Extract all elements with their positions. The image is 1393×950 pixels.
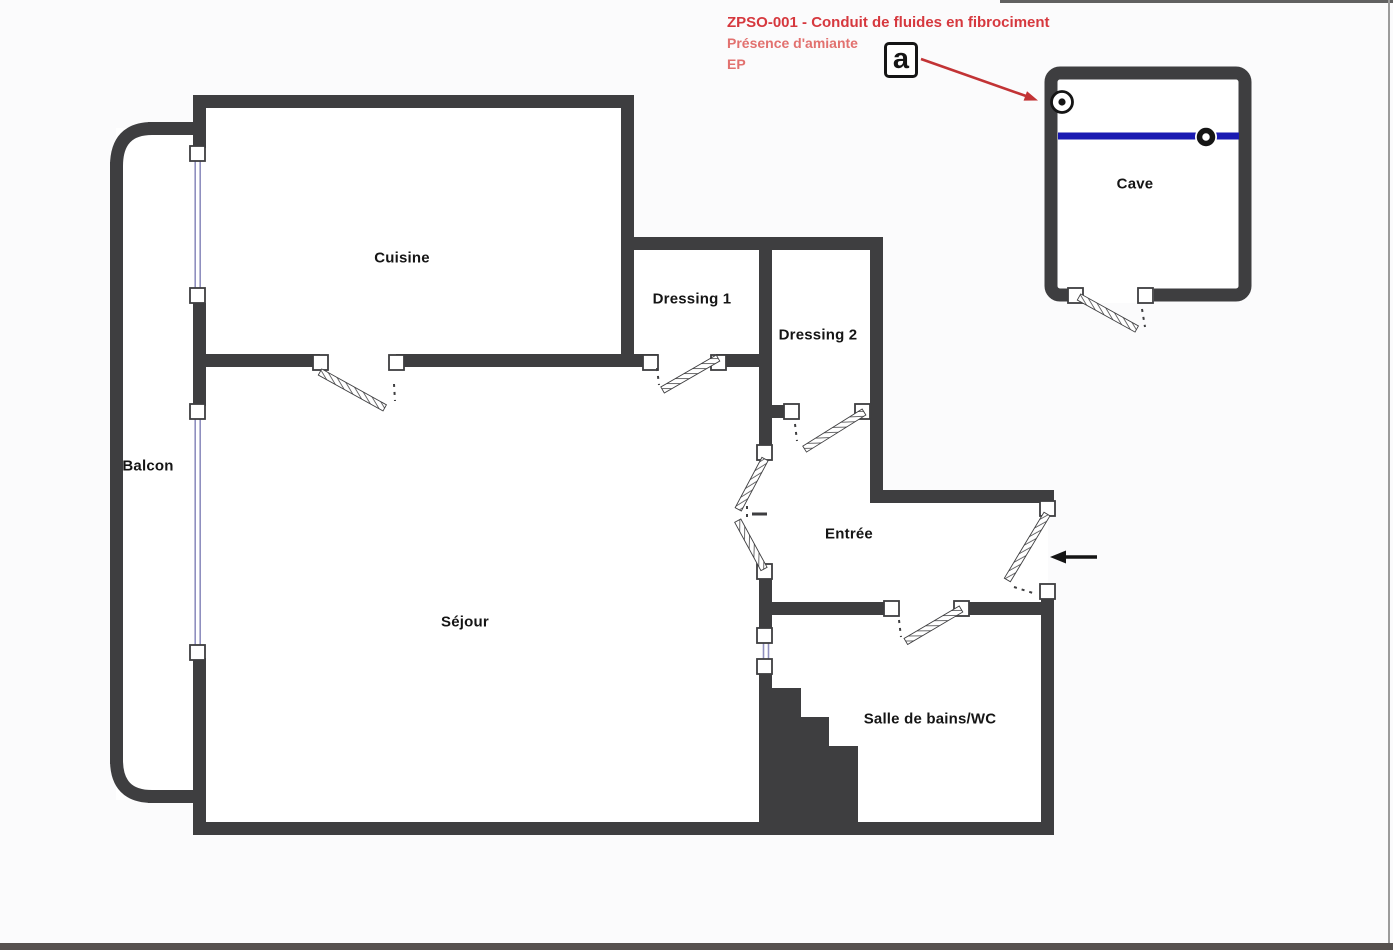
annotation-arrow-icon xyxy=(921,59,1038,101)
bottom-edge-bar xyxy=(0,943,1393,950)
conduit-marker-icon xyxy=(1200,131,1213,144)
annotation-ep: EP xyxy=(727,56,746,72)
floor-plan-drawing xyxy=(0,0,1393,950)
room-label-entree: Entrée xyxy=(825,526,873,543)
room-label-cave: Cave xyxy=(1117,176,1154,193)
room-label-sejour: Séjour xyxy=(441,614,489,631)
top-edge-strip xyxy=(1000,0,1393,3)
room-label-cuisine: Cuisine xyxy=(374,250,430,267)
room-label-balcon: Balcon xyxy=(122,458,173,475)
floor-plan-page: Cuisine Dressing 1 Dressing 2 Balcon Séj… xyxy=(0,0,1393,950)
annotation-title: ZPSO-001 - Conduit de fluides en fibroci… xyxy=(727,14,1050,31)
room-label-salle-de-bains: Salle de bains/WC xyxy=(864,711,997,728)
asbestos-a-icon: a xyxy=(884,42,918,78)
entry-arrow-icon xyxy=(1050,551,1097,564)
room-label-dressing2: Dressing 2 xyxy=(779,327,858,344)
cave-room xyxy=(1051,73,1245,332)
room-label-dressing1: Dressing 1 xyxy=(653,291,732,308)
right-edge-line xyxy=(1388,0,1390,950)
annotation-presence: Présence d'amiante xyxy=(727,35,858,51)
